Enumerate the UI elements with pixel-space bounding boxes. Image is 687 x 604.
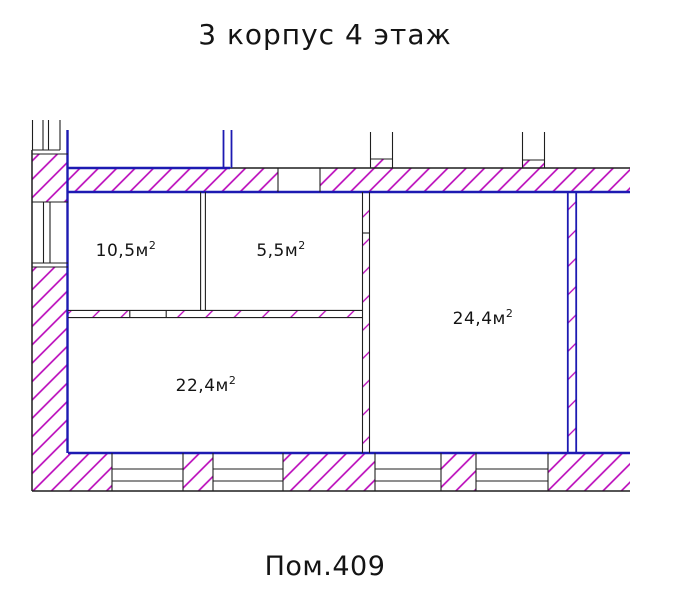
wall-hatching [32,154,630,491]
room-area-superscript: 2 [149,239,157,252]
floor-plan-drawing [0,0,687,600]
floor-plan: 10,5м2 5,5м2 24,4м2 22,4м2 [0,0,687,600]
room-area-value: 22,4м [176,376,229,396]
page: { "title": "3 корпус 4 этаж", "footer": … [0,0,687,600]
room-area-superscript: 2 [229,374,237,387]
room-label-10-5: 10,5м2 [96,239,157,261]
room-area-superscript: 2 [298,239,306,252]
room-area-value: 10,5м [96,241,149,261]
room-label-24-4: 24,4м2 [453,307,514,329]
room-area-value: 5,5м [256,241,298,261]
top-wall-opening [278,168,320,192]
room-area-value: 24,4м [453,309,506,329]
left-wall-window [32,202,68,267]
room-label-22-4: 22,4м2 [176,374,237,396]
room-number-label: Пом.409 [225,551,425,582]
room-label-5-5: 5,5м2 [256,239,305,261]
upper-wall-stubs [32,120,545,168]
room-area-superscript: 2 [506,307,514,320]
